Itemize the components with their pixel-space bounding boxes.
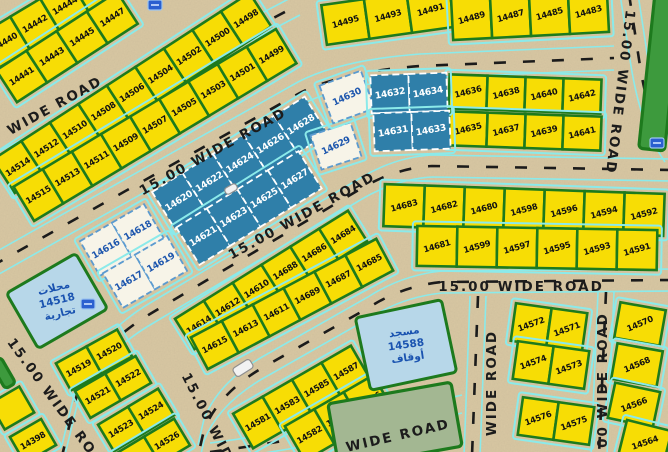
parcel-14493[interactable]: 14493 — [364, 0, 412, 39]
parcel-14591[interactable]: 14591 — [617, 229, 658, 270]
parcel-14599[interactable]: 14599 — [457, 227, 498, 268]
mosque-parcel[interactable]: مسجد14588أوقاف — [355, 300, 456, 391]
parcel-14640[interactable]: 14640 — [524, 77, 563, 112]
parcel-block-J2: 1457614575 — [513, 392, 600, 450]
parcel-14593[interactable]: 14593 — [577, 229, 618, 270]
parcel-14641[interactable]: 14641 — [562, 115, 601, 150]
parcel-14574[interactable]: 14574 — [513, 341, 554, 384]
parcel-14576[interactable]: 14576 — [518, 397, 559, 440]
landmark-icon — [148, 0, 162, 10]
parcel-map: 1444014442144441444114443144451444714514… — [0, 0, 668, 452]
parcel-14639[interactable]: 14639 — [524, 114, 563, 149]
landmark-icon — [650, 138, 664, 148]
parcel-14575[interactable]: 14575 — [553, 402, 594, 445]
road-label: 00 WIDE ROAD — [595, 312, 611, 448]
parcel-14596[interactable]: 14596 — [543, 190, 584, 233]
parcel-14573[interactable]: 14573 — [548, 346, 589, 389]
landmark-icon — [81, 299, 95, 309]
parcel-14642[interactable]: 14642 — [562, 78, 601, 113]
road-label: 15.00 WIDE ROAD — [438, 279, 604, 295]
parcel-block-J1: 1457414573 — [508, 336, 595, 394]
map-canvas: 1444014442144441444114443144451444714514… — [0, 0, 668, 452]
parcel-14597[interactable]: 14597 — [497, 227, 538, 268]
parcel-14485[interactable]: 14485 — [529, 0, 570, 36]
parcel-14595[interactable]: 14595 — [537, 228, 578, 269]
parcel-14681[interactable]: 14681 — [417, 226, 458, 267]
parcel-shape — [568, 0, 609, 34]
parcel-14489[interactable]: 14489 — [451, 0, 492, 40]
parcel-14633[interactable]: 14633 — [411, 111, 450, 150]
parcel-14598[interactable]: 14598 — [503, 188, 544, 231]
parcel-14636[interactable]: 14636 — [448, 74, 487, 109]
parcel-block-I1: 146811459914597145951459314591 — [412, 221, 662, 274]
parcel-14568[interactable]: 14568 — [611, 343, 663, 386]
parcel-14638[interactable]: 14638 — [486, 76, 525, 111]
parcel-14483[interactable]: 14483 — [568, 0, 609, 34]
parcel-14637[interactable]: 14637 — [486, 113, 525, 148]
parcel-14495[interactable]: 14495 — [321, 0, 369, 45]
parcel-block-E7: 1463114633 — [369, 106, 456, 156]
road-label: WIDE ROAD — [484, 330, 500, 436]
parcel-14631[interactable]: 14631 — [373, 112, 412, 151]
parcel-14487[interactable]: 14487 — [490, 0, 531, 38]
